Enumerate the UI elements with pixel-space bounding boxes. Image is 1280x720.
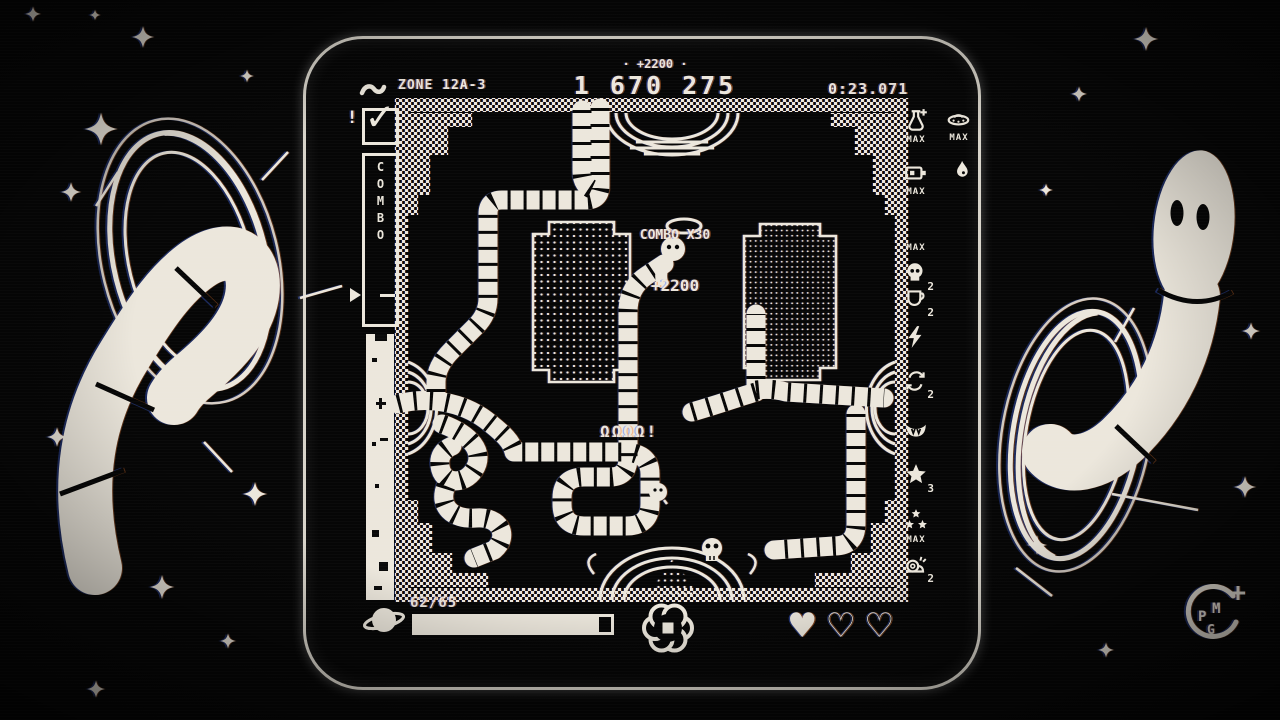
gauge-mark [372,442,376,446]
timer: 0:23.071 [828,80,908,98]
powerup-label: 3 [927,482,935,495]
critter [649,483,667,504]
combo-meter: COMBO [362,153,399,327]
powerup-item: 2 [893,286,939,319]
heart-empty-icon: ♡ [864,606,902,646]
combo-callout: COMBO X30 +2200 [600,195,750,329]
bolt-icon [903,324,929,350]
gauge-mark [379,562,388,571]
check-icon: ✓ [367,95,392,137]
game-stage: P M G [0,0,1280,720]
triple-star-icon [903,508,929,534]
chatter-text: ΩΩΩΩ! [600,422,658,441]
gauge-mark [372,530,379,537]
nest-stipple [646,558,700,598]
cup-icon [903,286,929,312]
star-icon [903,462,929,488]
fangs-icon [903,416,929,442]
crescent-icon [903,216,929,242]
progress-bar [412,614,614,635]
powerup-label: 2 [927,306,935,319]
powerup-label: MAX [906,535,925,545]
fill-gauge [366,334,394,600]
powerup-item: MAX [893,216,939,253]
planet-icon [362,598,410,646]
gauge-mark [379,398,382,409]
snail-icon [903,552,929,578]
corner-ziggurat [831,113,895,215]
combo-marker [380,294,395,297]
skull-icon [903,260,929,286]
powerup-item [893,416,939,443]
powerup-label: MAX [906,243,925,253]
combo-checkbox: ✓ [362,108,399,145]
flask-plus-icon [903,108,929,134]
zone-label: ZONE 12A-3 [398,78,486,93]
powerup-item: 2 [893,368,939,401]
powerup-label: MAX [906,135,925,145]
skull-pickup [702,538,722,561]
combo-callout-points: +2200 [600,276,750,296]
powerup-item [940,158,986,183]
gauge-mark [380,438,388,441]
powerup-item [893,324,939,351]
gauge-mark [375,334,387,341]
flower-icon [630,600,706,660]
powerup-item: 2 [893,552,939,585]
battery-icon [903,160,929,186]
powerup-item: MAX [893,108,939,145]
combo-callout-text: COMBO X30 [600,228,750,244]
fruit-count: 62/65 [410,595,457,611]
powerup-label: 2 [927,572,935,585]
droplet-icon [952,158,974,182]
progress-fill [415,617,599,632]
gauge-mark [374,586,382,590]
combo-label: COMBO [374,160,388,245]
powerup-item: 3 [893,462,939,495]
powerup-item: MAX [893,508,939,545]
refresh-icon [903,368,929,394]
powerup-label: MAX [906,187,925,197]
alert-mark: ! [347,108,357,128]
top-gate [606,113,738,155]
gauge-mark [372,358,377,362]
heart-empty-icon: ♡ [825,606,863,646]
powerup-item: MAX [893,160,939,197]
score: 1 670 275 [520,71,790,100]
corner-ziggurat [408,113,472,215]
powerup-label: 2 [927,388,935,401]
powerup-item: MAX [936,106,982,143]
score-delta: · +2200 · [560,57,750,71]
powerup-label: MAX [949,133,968,143]
heart-filled-icon: ♥ [787,606,825,646]
lives: ♥♡♡ [787,606,902,646]
combo-pointer-icon [350,288,361,302]
ufo-icon [946,106,972,132]
right-gate [866,362,895,454]
gauge-mark [375,484,379,488]
